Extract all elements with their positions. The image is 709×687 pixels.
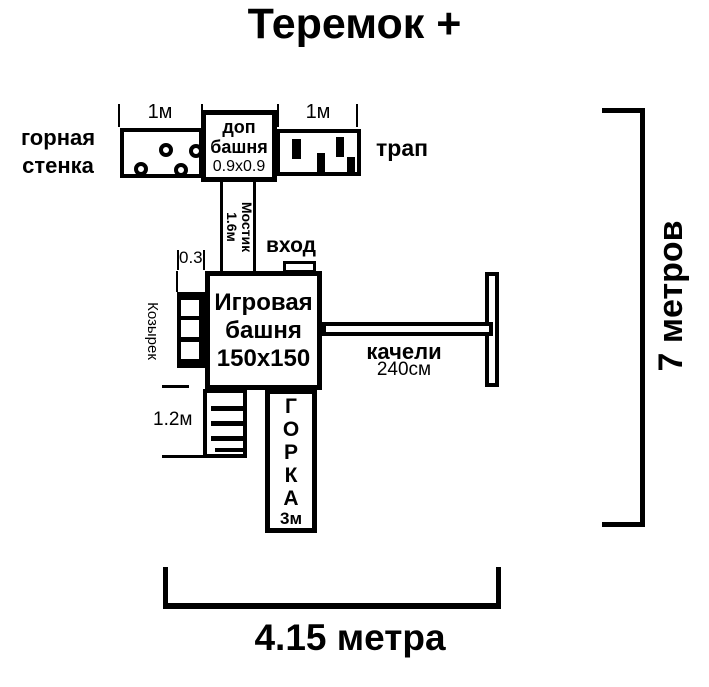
ramp-tread	[317, 153, 325, 176]
slide-length-label: 3м	[280, 510, 302, 528]
slide-letter: Г	[285, 395, 297, 418]
entrance-label: вход	[266, 234, 316, 258]
canopy-box	[177, 292, 205, 368]
ramp-box	[276, 129, 361, 176]
slide-letter: А	[283, 487, 298, 510]
canopy-window	[181, 300, 199, 316]
ladder-rung	[211, 436, 247, 441]
ladder-rung	[215, 448, 246, 452]
slide-box: Г О Р К А 3м	[265, 389, 317, 533]
climbing-wall-label-line2: стенка	[10, 152, 106, 180]
main-tower-box: Игровая башня 150х150	[205, 271, 322, 390]
extra-tower-box: доп башня 0.9х0.9	[201, 110, 277, 182]
width-bracket-tick-left	[163, 567, 168, 609]
dim-0-3-tick-a	[177, 250, 179, 270]
dim-0-3-extension-line	[176, 271, 178, 292]
extra-tower-line1: доп	[222, 117, 255, 137]
height-bracket-tick-top	[602, 108, 645, 113]
height-label: 7 метров	[651, 196, 691, 396]
ladder-box	[203, 389, 247, 458]
playground-plan-diagram: Теремок + горная стенка 1м доп башня 0.9…	[0, 0, 709, 687]
climbing-hold-dot	[159, 143, 173, 157]
canopy-window	[181, 320, 199, 337]
extra-tower-size: 0.9х0.9	[213, 157, 265, 176]
dim-0-3-label: 0.3	[179, 248, 203, 268]
ladder-rung	[211, 421, 247, 426]
extra-tower-line2: башня	[210, 137, 268, 157]
dim-1-2m-tick-top	[162, 385, 189, 388]
climbing-wall-label: горная стенка	[10, 124, 106, 180]
climbing-wall-box	[120, 128, 203, 178]
ramp-label: трап	[376, 135, 428, 162]
bridge-label-line2: 1.6м	[224, 182, 239, 272]
bridge-label-line1: Мостик	[239, 182, 254, 272]
climbing-hold-dot	[174, 163, 188, 177]
dim-1m-left-label: 1м	[130, 101, 190, 124]
ramp-tread	[347, 157, 355, 176]
ramp-tread	[292, 139, 301, 159]
height-bracket-line	[640, 108, 645, 527]
dim-0-3-tick-b	[203, 250, 205, 270]
dim-1m-right-tick-b	[356, 104, 358, 127]
canopy-label: Козырек	[143, 291, 161, 371]
slide-letter: К	[285, 464, 298, 487]
swing-beam	[322, 322, 493, 336]
height-bracket-tick-bottom	[602, 522, 645, 527]
dim-1-2m-tick-bottom	[162, 455, 203, 458]
bridge-label: Мостик 1.6м	[222, 182, 254, 272]
main-tower-line2: башня	[225, 317, 302, 345]
main-tower-line1: Игровая	[214, 289, 312, 317]
climbing-wall-label-line1: горная	[10, 124, 106, 152]
main-tower-size: 150х150	[217, 345, 310, 373]
canopy-window	[181, 342, 199, 359]
width-bracket-line	[163, 603, 501, 609]
width-bracket-tick-right	[496, 567, 501, 609]
ladder-rung	[211, 406, 247, 411]
dim-1m-right-label: 1м	[288, 101, 348, 124]
dim-1-2m-label: 1.2м	[153, 409, 192, 431]
swing-length-label: 240см	[354, 359, 454, 381]
dim-1m-right-tick-a	[277, 104, 279, 127]
slide-letter: О	[283, 418, 299, 441]
width-label: 4.15 метра	[130, 617, 570, 659]
slide-letter: Р	[284, 441, 298, 464]
dim-1m-left-tick-a	[118, 104, 120, 127]
page-title: Теремок +	[0, 0, 709, 49]
ramp-tread	[336, 137, 344, 157]
climbing-hold-dot	[134, 162, 148, 176]
